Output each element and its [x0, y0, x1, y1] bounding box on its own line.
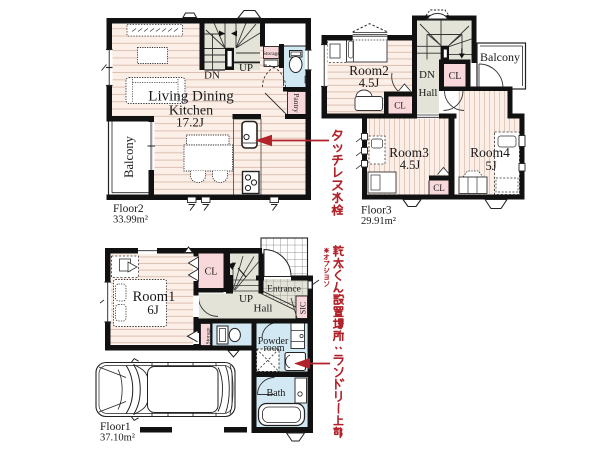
- svg-text:17.2J: 17.2J: [176, 115, 204, 130]
- svg-text:CL: CL: [205, 267, 218, 278]
- svg-text:CL: CL: [433, 183, 445, 193]
- svg-text:Hall: Hall: [254, 303, 273, 315]
- svg-text:SIC: SIC: [299, 302, 308, 314]
- svg-text:Floor3: Floor3: [361, 205, 392, 217]
- svg-text:4.5J: 4.5J: [359, 76, 380, 90]
- svg-text:29.91m²: 29.91m²: [361, 216, 396, 227]
- svg-text:6J: 6J: [147, 302, 159, 317]
- svg-text:Floor2: Floor2: [113, 203, 144, 215]
- svg-text:UP: UP: [239, 62, 253, 74]
- svg-text:Living Dining: Living Dining: [148, 89, 234, 105]
- svg-text:Floor1: Floor1: [100, 421, 131, 433]
- svg-text:CL: CL: [449, 71, 462, 82]
- svg-text:Balcony: Balcony: [480, 50, 520, 64]
- svg-text:Room4: Room4: [470, 145, 510, 160]
- svg-text:UP: UP: [239, 293, 253, 305]
- svg-text:room: room: [263, 343, 284, 354]
- svg-text:Entrance: Entrance: [267, 285, 301, 295]
- svg-text:Storage: Storage: [206, 327, 212, 344]
- svg-text:33.99m²: 33.99m²: [113, 215, 148, 226]
- svg-text:Storage: Storage: [263, 51, 281, 57]
- svg-text:Balcony: Balcony: [122, 135, 136, 177]
- svg-text:4.5J: 4.5J: [400, 158, 421, 172]
- svg-text:Hall: Hall: [419, 87, 438, 99]
- svg-text:37.10m²: 37.10m²: [100, 433, 135, 444]
- svg-text:DN: DN: [204, 70, 220, 82]
- svg-text:Pantry: Pantry: [292, 93, 301, 113]
- svg-text:5J: 5J: [485, 159, 496, 173]
- svg-text:DN: DN: [419, 69, 435, 81]
- svg-text:CL: CL: [394, 101, 406, 111]
- svg-text:Bath: Bath: [267, 388, 286, 399]
